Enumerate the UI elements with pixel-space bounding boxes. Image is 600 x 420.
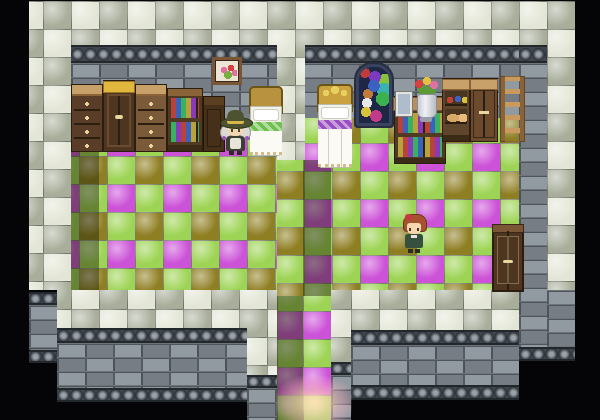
floor-left-wall-shadow xyxy=(71,140,99,296)
bookshelf-left xyxy=(167,88,203,152)
south-wall-d-cap xyxy=(331,362,351,375)
ladder-body xyxy=(500,76,525,142)
photo-frame-body xyxy=(396,92,412,116)
door-right-room[interactable] xyxy=(492,224,524,292)
bed-trim-stripe xyxy=(318,120,352,129)
wardrobe xyxy=(470,78,498,142)
bookshelf-base xyxy=(168,145,202,151)
bed-blanket xyxy=(318,129,352,167)
girl-hat-crown xyxy=(227,110,244,124)
girl-sprite xyxy=(220,110,251,156)
dresser-body xyxy=(135,84,167,152)
wall-cap-east xyxy=(519,45,547,63)
south-wall-e-foot xyxy=(351,385,519,400)
dresser-left-2 xyxy=(135,84,167,152)
character-red-hair[interactable] xyxy=(402,214,426,254)
bed-trim-stripe xyxy=(250,122,282,131)
cupboard-handles xyxy=(115,115,123,119)
walkway-ext-checker xyxy=(247,290,277,375)
border-right-checker xyxy=(547,45,575,290)
floor-right-wall-shadow xyxy=(303,160,331,296)
wall-cap-right-room xyxy=(303,45,519,63)
cupboard-top xyxy=(103,81,135,93)
chest-panel xyxy=(207,109,221,147)
book-row-icon xyxy=(171,98,199,118)
jars-icon xyxy=(445,91,467,106)
south-wall-f-brick xyxy=(547,290,575,347)
book-row-icon xyxy=(171,122,199,142)
wall-cap-left-room xyxy=(71,45,277,63)
boy-bow-icon xyxy=(405,214,412,220)
dresser-top xyxy=(72,85,102,96)
boy-collar xyxy=(411,235,417,238)
door-body xyxy=(492,224,524,292)
chest-top xyxy=(204,97,224,105)
south-wall-a-brick xyxy=(29,305,57,350)
cupboard-doors xyxy=(107,94,131,147)
south-wall-b-foot xyxy=(57,388,247,402)
south-wall-b-cap xyxy=(57,328,247,343)
walkway-col-checker xyxy=(331,290,351,362)
south-wall-e-cap xyxy=(351,330,519,345)
vase-pot xyxy=(417,94,437,118)
boy-feet xyxy=(408,249,420,253)
wall-ladder xyxy=(500,76,525,142)
exit-light-glow xyxy=(276,376,352,420)
south-wall-e-brick xyxy=(351,345,519,385)
south-wall-c-brick xyxy=(247,388,277,420)
flowers-icon xyxy=(412,76,440,96)
dresser-top xyxy=(136,85,166,96)
bed-body xyxy=(249,86,283,156)
jarshelf-body xyxy=(442,78,470,142)
shelfunit-base xyxy=(395,158,445,163)
bed-right xyxy=(317,84,353,168)
bed-pillow xyxy=(253,109,279,121)
south-wall-a-cap xyxy=(29,292,57,305)
south-wall-c-cap xyxy=(247,375,277,388)
dresser-drawers xyxy=(74,97,100,148)
jar-shelf xyxy=(442,78,470,142)
girl-feet xyxy=(229,151,242,155)
boy-eyes xyxy=(409,228,419,231)
walkway-right-checker xyxy=(351,290,519,330)
wardrobe-top xyxy=(470,79,498,90)
bed-left xyxy=(249,86,283,156)
character-girl-hat[interactable] xyxy=(220,110,251,156)
stained-glass-body xyxy=(356,64,392,126)
bookshelf-top xyxy=(168,89,202,96)
wardrobe-body xyxy=(470,78,498,142)
floor-left-room[interactable] xyxy=(71,140,277,296)
wardrobe-doors xyxy=(473,90,495,138)
bookshelf-body xyxy=(167,88,203,152)
picture-frame-border xyxy=(212,57,242,85)
bed-body xyxy=(317,84,353,168)
walkway-left-checker xyxy=(57,290,247,328)
boy-sprite xyxy=(402,214,426,254)
bed-blanket xyxy=(250,131,282,155)
wardrobe-handles xyxy=(479,111,489,114)
bed-pillow xyxy=(321,107,349,119)
south-wall-f-foot xyxy=(519,347,575,361)
vase-foot xyxy=(420,117,432,122)
girl-tie-right xyxy=(245,136,249,140)
border-left-checker xyxy=(29,45,71,290)
girl-eyes xyxy=(231,129,240,132)
vase-body xyxy=(412,76,440,122)
stained-glass-window xyxy=(356,64,392,126)
dresser-drawers xyxy=(138,97,164,148)
jarshelf-top xyxy=(442,79,470,90)
cupboard-body xyxy=(103,80,135,152)
cupboard-yellow-top xyxy=(103,80,135,152)
book-row-icon xyxy=(398,137,442,157)
wall-picture-flowers xyxy=(212,57,242,85)
small-photo-frame xyxy=(396,92,412,116)
dresser-body xyxy=(71,84,103,152)
border-top-checker xyxy=(29,1,575,45)
door-handles xyxy=(503,260,513,263)
flower-art xyxy=(217,62,237,80)
girl-apron xyxy=(230,138,241,149)
jarshelf-base xyxy=(443,135,469,141)
dresser-left-1 xyxy=(71,84,103,152)
south-wall-b-brick xyxy=(57,343,247,388)
bread-icon xyxy=(445,109,467,124)
south-wall-a-foot xyxy=(29,350,57,363)
game-viewport[interactable] xyxy=(0,0,600,420)
flower-vase xyxy=(412,76,440,122)
